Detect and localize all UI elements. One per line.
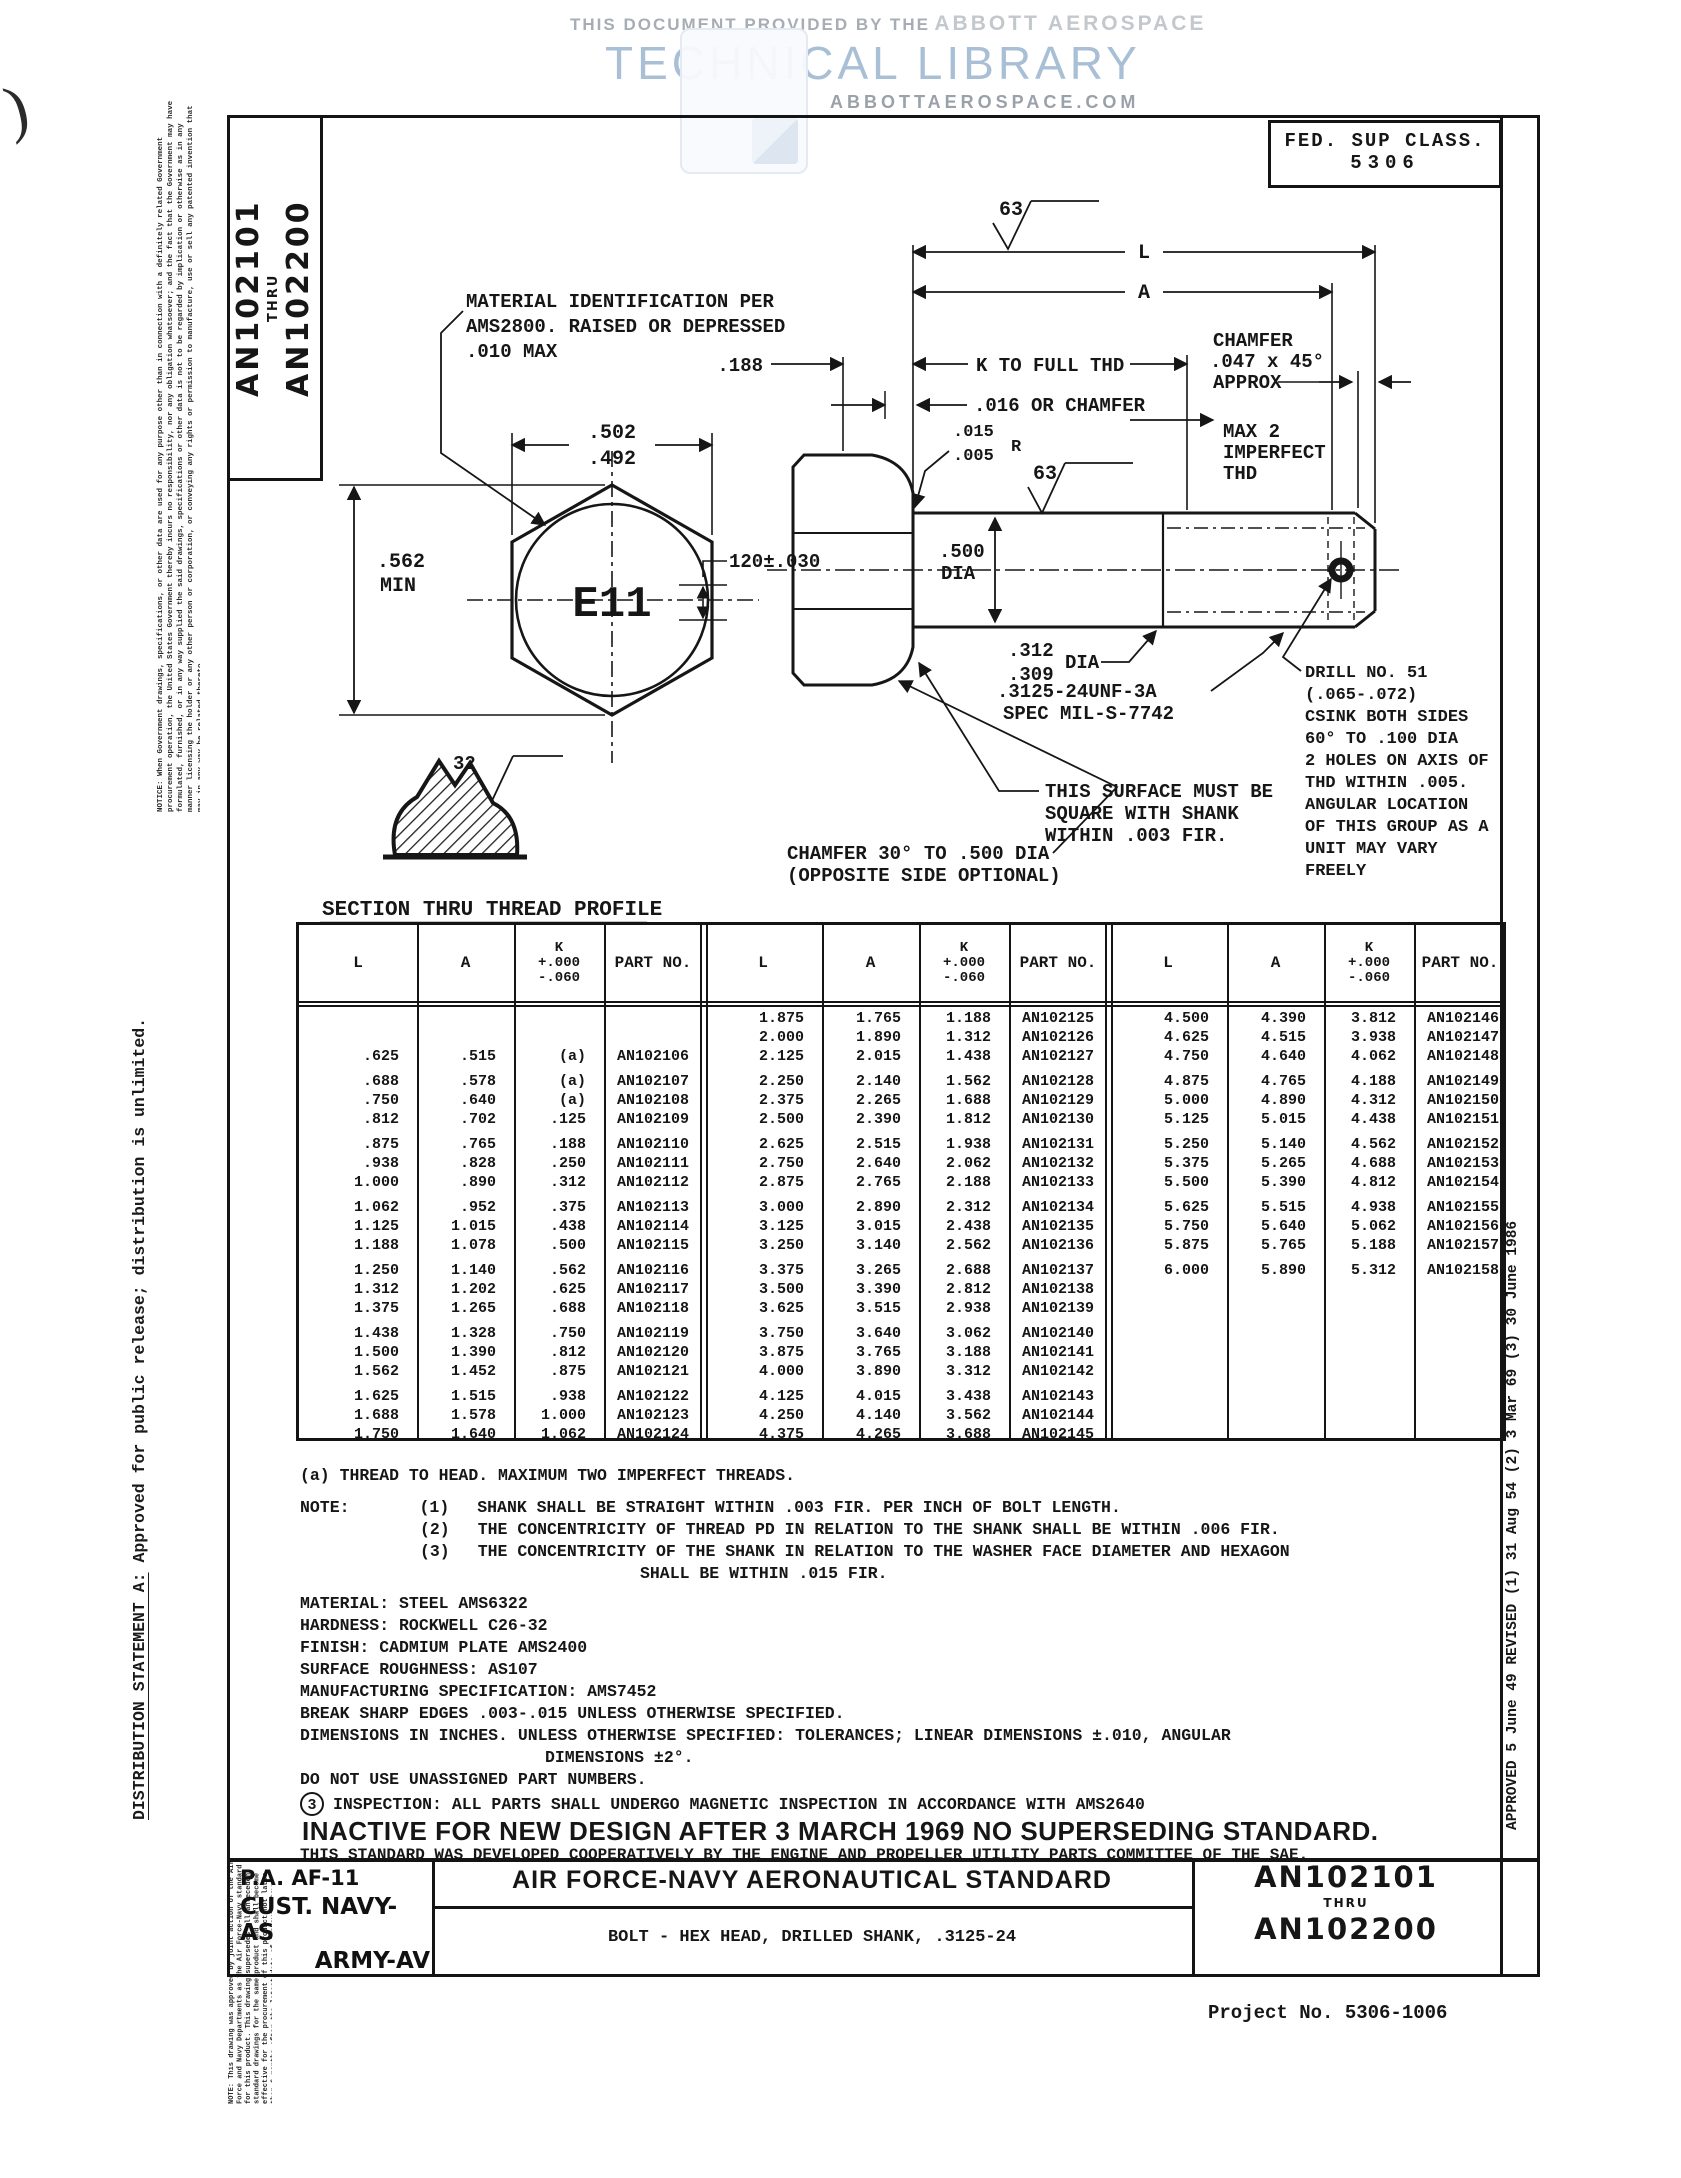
table-cell: 4.140 xyxy=(822,1406,919,1425)
table-cell: 2.640 xyxy=(822,1154,919,1173)
table-cell: 6.000 xyxy=(1109,1261,1227,1280)
table-cell: 2.265 xyxy=(822,1091,919,1110)
table-cell: 1.265 xyxy=(417,1299,514,1318)
table-cell: 4.062 xyxy=(1324,1047,1414,1066)
thread-spec-2: SPEC MIL-S-7742 xyxy=(1003,703,1174,725)
table-cell: AN102136 xyxy=(1009,1236,1107,1255)
table-row: 1.1881.078.500AN102115 xyxy=(299,1236,702,1255)
table-cell: 4.625 xyxy=(1109,1028,1227,1047)
table-cell: AN102113 xyxy=(604,1198,702,1217)
table-header: L A K +.000 -.060 PART NO. xyxy=(704,925,1107,1001)
table-cell: .688 xyxy=(299,1072,417,1091)
square-note-3: WITHIN .003 FIR. xyxy=(1045,825,1227,847)
table-cell: 5.188 xyxy=(1324,1236,1414,1255)
table-cell: AN102112 xyxy=(604,1173,702,1192)
table-cell: 5.375 xyxy=(1109,1154,1227,1173)
table-cell: 3.000 xyxy=(704,1198,822,1217)
table-cell: 4.375 xyxy=(704,1425,822,1444)
table-cell: 5.875 xyxy=(1109,1236,1227,1255)
table-cell: 1.500 xyxy=(299,1343,417,1362)
inspection-note: 3INSPECTION: ALL PARTS SHALL UNDERGO MAG… xyxy=(300,1792,1145,1816)
col-header-a: A xyxy=(1227,954,1324,972)
table-cell: 5.140 xyxy=(1227,1135,1324,1154)
table-cell: AN102149 xyxy=(1414,1072,1506,1091)
table-cell: 2.438 xyxy=(919,1217,1009,1236)
table-cell xyxy=(604,1028,702,1047)
table-cell: 1.312 xyxy=(299,1280,417,1299)
note-row-1: NOTE:(1)SHANK SHALL BE STRAIGHT WITHIN .… xyxy=(300,1498,1121,1517)
table-rule xyxy=(1324,925,1326,1438)
table-cell: 4.265 xyxy=(822,1425,919,1444)
table-row: 5.2505.1404.562AN102152 xyxy=(1109,1135,1506,1154)
table-cell: 1.688 xyxy=(299,1406,417,1425)
spec-break-edges: BREAK SHARP EDGES .003-.015 UNLESS OTHER… xyxy=(300,1704,845,1723)
table-row: 3.5003.3902.812AN102138 xyxy=(704,1280,1107,1299)
table-row-group: 5.6255.5154.938AN1021555.7505.6405.062AN… xyxy=(1109,1198,1506,1255)
table-row: .875.765.188AN102110 xyxy=(299,1135,702,1154)
table-row: 5.6255.5154.938AN102155 xyxy=(1109,1198,1506,1217)
table-cell: 3.312 xyxy=(919,1362,1009,1381)
table-cell: 2.875 xyxy=(704,1173,822,1192)
table-cell: .578 xyxy=(417,1072,514,1091)
table-cell: 3.062 xyxy=(919,1324,1009,1343)
table-row: 1.4381.328.750AN102119 xyxy=(299,1324,702,1343)
table-row-group: 4.1254.0153.438AN1021434.2504.1403.562AN… xyxy=(704,1387,1107,1444)
table-cell: .702 xyxy=(417,1110,514,1129)
callout-material-id-1: MATERIAL IDENTIFICATION PER xyxy=(466,291,774,313)
table-cell: AN102137 xyxy=(1009,1261,1107,1280)
table-rule xyxy=(700,925,702,1438)
table-cell: 2.312 xyxy=(919,1198,1009,1217)
table-cell: (a) xyxy=(514,1047,604,1066)
table-cell: AN102117 xyxy=(604,1280,702,1299)
table-row: 3.8753.7653.188AN102141 xyxy=(704,1343,1107,1362)
table-cell: AN102133 xyxy=(1009,1173,1107,1192)
parts-table: L A K +.000 -.060 PART NO. .625.515(a)AN… xyxy=(296,922,1506,1441)
table-cell: .312 xyxy=(514,1173,604,1192)
table-cell: AN102155 xyxy=(1414,1198,1506,1217)
inactive-statement: INACTIVE FOR NEW DESIGN AFTER 3 MARCH 19… xyxy=(302,1816,1379,1847)
table-cell: .500 xyxy=(514,1236,604,1255)
table-cell: 5.062 xyxy=(1324,1217,1414,1236)
table-cell: 1.875 xyxy=(704,1009,822,1028)
table-cell: 3.250 xyxy=(704,1236,822,1255)
col-header-a: A xyxy=(822,954,919,972)
table-rule xyxy=(919,925,921,1438)
table-row: 1.5001.390.812AN102120 xyxy=(299,1343,702,1362)
watermark-abbott: ABBOTT AEROSPACE xyxy=(934,12,1206,35)
spec-unassigned: DO NOT USE UNASSIGNED PART NUMBERS. xyxy=(300,1770,647,1789)
pen-mark: ) xyxy=(0,71,36,148)
table-cell: 4.640 xyxy=(1227,1047,1324,1066)
distribution-statement-text: Approved for public release; distributio… xyxy=(130,1018,149,1573)
shank-dia-label: DIA xyxy=(941,563,976,585)
table-header: L A K +.000 -.060 PART NO. xyxy=(299,925,702,1001)
table-cell: 4.875 xyxy=(1109,1072,1227,1091)
table-cell: 4.438 xyxy=(1324,1110,1414,1129)
table-row: 3.6253.5152.938AN102139 xyxy=(704,1299,1107,1318)
table-row: 2.2502.1401.562AN102128 xyxy=(704,1072,1107,1091)
table-cell: 3.688 xyxy=(919,1425,1009,1444)
table-cell: 2.140 xyxy=(822,1072,919,1091)
table-cell: AN102126 xyxy=(1009,1028,1107,1047)
table-row: 2.8752.7652.188AN102133 xyxy=(704,1173,1107,1192)
col-header-l: L xyxy=(704,954,822,972)
table-cell: .938 xyxy=(299,1154,417,1173)
table-cell: .515 xyxy=(417,1047,514,1066)
table-cell: 2.625 xyxy=(704,1135,822,1154)
table-row: 1.000.890.312AN102112 xyxy=(299,1173,702,1192)
table-row-group: 1.6251.515.938AN1021221.6881.5781.000AN1… xyxy=(299,1387,702,1444)
table-cell: 4.125 xyxy=(704,1387,822,1406)
table-cell: AN102140 xyxy=(1009,1324,1107,1343)
table-cell: 1.015 xyxy=(417,1217,514,1236)
table-cell: AN102135 xyxy=(1009,1217,1107,1236)
table-cell: AN102116 xyxy=(604,1261,702,1280)
col-header-k: K +.000 -.060 xyxy=(919,941,1009,986)
table-cell: 1.188 xyxy=(919,1009,1009,1028)
table-row: 1.3751.265.688AN102118 xyxy=(299,1299,702,1318)
table-cell: 5.515 xyxy=(1227,1198,1324,1217)
table-row-group: 2.2502.1401.562AN1021282.3752.2651.688AN… xyxy=(704,1072,1107,1129)
table-rule xyxy=(1414,925,1416,1438)
table-header-rule xyxy=(299,1001,1503,1007)
table-cell: .375 xyxy=(514,1198,604,1217)
col-header-l: L xyxy=(1109,954,1227,972)
col-header-part: PART NO. xyxy=(1009,954,1107,972)
table-row: 1.062.952.375AN102113 xyxy=(299,1198,702,1217)
table-cell: 4.515 xyxy=(1227,1028,1324,1047)
table-cell: 2.515 xyxy=(822,1135,919,1154)
hole-dia-label: DIA xyxy=(1065,652,1100,674)
callout-imperfect-3: THD xyxy=(1223,463,1257,485)
square-note-1: THIS SURFACE MUST BE xyxy=(1045,781,1273,803)
table-cell: 1.000 xyxy=(299,1173,417,1192)
table-row-group: 4.5004.3903.812AN1021464.6254.5153.938AN… xyxy=(1109,1009,1506,1066)
table-cell: 1.062 xyxy=(514,1425,604,1444)
table-cell: 3.188 xyxy=(919,1343,1009,1362)
table-cell: AN102157 xyxy=(1414,1236,1506,1255)
table-cell: 1.390 xyxy=(417,1343,514,1362)
scanned-standard-page: THIS DOCUMENT PROVIDED BY THE ABBOTT AER… xyxy=(0,0,1681,2178)
dim-marking-size: 120±.030 xyxy=(729,551,820,573)
title-block-agency: P.A. AF-11 CUST. NAVY-AS ARMY-AV xyxy=(240,1866,430,1974)
table-cell: AN102138 xyxy=(1009,1280,1107,1299)
table-cell: AN102130 xyxy=(1009,1110,1107,1129)
shank-dia-value: .500 xyxy=(939,541,985,563)
table-row: 3.7503.6403.062AN102140 xyxy=(704,1324,1107,1343)
table-row: 4.2504.1403.562AN102144 xyxy=(704,1406,1107,1425)
table-cell: 1.438 xyxy=(299,1324,417,1343)
table-cell: 3.562 xyxy=(919,1406,1009,1425)
table-cell: 1.452 xyxy=(417,1362,514,1381)
table-cell: 3.515 xyxy=(822,1299,919,1318)
finish-63-top: 63 xyxy=(999,199,1023,222)
table-row-group: 3.7503.6403.062AN1021403.8753.7653.188AN… xyxy=(704,1324,1107,1381)
table-cell: .250 xyxy=(514,1154,604,1173)
table-row: 1.8751.7651.188AN102125 xyxy=(704,1009,1107,1028)
table-row: 4.5004.3903.812AN102146 xyxy=(1109,1009,1506,1028)
table-cell: 4.250 xyxy=(704,1406,822,1425)
table-cell: 5.312 xyxy=(1324,1261,1414,1280)
table-cell xyxy=(514,1028,604,1047)
table-cell: 4.938 xyxy=(1324,1198,1414,1217)
table-cell: 2.500 xyxy=(704,1110,822,1129)
table-cell: AN102146 xyxy=(1414,1009,1506,1028)
table-rule xyxy=(417,925,419,1438)
table-row: 1.5621.452.875AN102121 xyxy=(299,1362,702,1381)
table-cell: 2.938 xyxy=(919,1299,1009,1318)
table-row: 1.1251.015.438AN102114 xyxy=(299,1217,702,1236)
table-row-group: .875.765.188AN102110.938.828.250AN102111… xyxy=(299,1135,702,1192)
title-block-an-range: AN102101 THRU AN102200 xyxy=(1192,1860,1500,1946)
table-row: 4.8754.7654.188AN102149 xyxy=(1109,1072,1506,1091)
table-row-group: 4.8754.7654.188AN1021495.0004.8904.312AN… xyxy=(1109,1072,1506,1129)
table-cell: AN102150 xyxy=(1414,1091,1506,1110)
table-row: 5.5005.3904.812AN102154 xyxy=(1109,1173,1506,1192)
table-cell: AN102131 xyxy=(1009,1135,1107,1154)
table-rule xyxy=(1009,925,1011,1438)
table-cell: 1.188 xyxy=(299,1236,417,1255)
table-rule xyxy=(1105,925,1107,1438)
table-cell xyxy=(299,1009,417,1028)
title-block-mid-rule xyxy=(432,1906,1195,1909)
table-cell: AN102124 xyxy=(604,1425,702,1444)
table-cell: .688 xyxy=(514,1299,604,1318)
table-cell: .812 xyxy=(514,1343,604,1362)
table-cell: 2.015 xyxy=(822,1047,919,1066)
table-row: 5.0004.8904.312AN102150 xyxy=(1109,1091,1506,1110)
table-cell: AN102134 xyxy=(1009,1198,1107,1217)
drill-note-1: DRILL NO. 51 xyxy=(1305,664,1427,683)
table-cell: 2.250 xyxy=(704,1072,822,1091)
table-cell: AN102156 xyxy=(1414,1217,1506,1236)
table-cell: 3.125 xyxy=(704,1217,822,1236)
table-cell: (a) xyxy=(514,1091,604,1110)
table-cell: .952 xyxy=(417,1198,514,1217)
thread-to-head-note: (a) THREAD TO HEAD. MAXIMUM TWO IMPERFEC… xyxy=(300,1466,795,1485)
an-thru: THRU xyxy=(1192,1896,1500,1910)
fillet-radius-min: .005 xyxy=(953,447,994,466)
callout-imperfect-2: IMPERFECT xyxy=(1223,442,1326,464)
table-cell: .750 xyxy=(299,1091,417,1110)
table-row: 5.1255.0154.438AN102151 xyxy=(1109,1110,1506,1129)
table-header: L A K +.000 -.060 PART NO. xyxy=(1109,925,1506,1001)
table-cell: .875 xyxy=(299,1135,417,1154)
bolt-drawing: MATERIAL IDENTIFICATION PER AMS2800. RAI… xyxy=(227,115,1502,925)
dim-head-height: .562 xyxy=(377,551,425,574)
table-cell: 3.140 xyxy=(822,1236,919,1255)
drill-note-7: ANGULAR LOCATION xyxy=(1305,796,1468,815)
table-cell: AN102118 xyxy=(604,1299,702,1318)
table-row-group: 1.2501.140.562AN1021161.3121.202.625AN10… xyxy=(299,1261,702,1318)
custodian-army: ARMY-AV xyxy=(240,1948,430,1974)
table-rule xyxy=(706,925,708,1438)
table-cell: 1.812 xyxy=(919,1110,1009,1129)
procuring-activity: P.A. AF-11 xyxy=(240,1866,430,1890)
spec-dimensions-2: DIMENSIONS ±2°. xyxy=(545,1748,694,1767)
spec-surface-roughness: SURFACE ROUGHNESS: AS107 xyxy=(300,1660,538,1679)
table-cell: 1.140 xyxy=(417,1261,514,1280)
table-cell: .828 xyxy=(417,1154,514,1173)
table-cell: 3.390 xyxy=(822,1280,919,1299)
callout-material-id-2: AMS2800. RAISED OR DEPRESSED xyxy=(466,316,785,338)
table-cell: .125 xyxy=(514,1110,604,1129)
table-cell: 4.562 xyxy=(1324,1135,1414,1154)
table-cell: AN102153 xyxy=(1414,1154,1506,1173)
table-cell: AN102141 xyxy=(1009,1343,1107,1362)
drill-note-3: CSINK BOTH SIDES xyxy=(1305,708,1468,727)
table-row: 4.1254.0153.438AN102143 xyxy=(704,1387,1107,1406)
table-row: 4.0003.8903.312AN102142 xyxy=(704,1362,1107,1381)
table-row: 5.8755.7655.188AN102157 xyxy=(1109,1236,1506,1255)
table-cell: .640 xyxy=(417,1091,514,1110)
col-header-l: L xyxy=(299,954,417,972)
watermark-provider-line: THIS DOCUMENT PROVIDED BY THE ABBOTT AER… xyxy=(570,12,1206,36)
table-cell: 1.438 xyxy=(919,1047,1009,1066)
square-note-2: SQUARE WITH SHANK xyxy=(1045,803,1239,825)
distribution-statement: DISTRIBUTION STATEMENT A: Approved for p… xyxy=(130,990,168,1820)
table-cell: (a) xyxy=(514,1072,604,1091)
table-row: 2.7502.6402.062AN102132 xyxy=(704,1154,1107,1173)
table-cell: 3.015 xyxy=(822,1217,919,1236)
circled-3-icon: 3 xyxy=(300,1792,324,1816)
drill-note-4: 60° TO .100 DIA xyxy=(1305,730,1459,749)
table-cell: 1.578 xyxy=(417,1406,514,1425)
table-row: 1.2501.140.562AN102116 xyxy=(299,1261,702,1280)
drill-note-6: THD WITHIN .005. xyxy=(1305,774,1468,793)
table-row: 3.1253.0152.438AN102135 xyxy=(704,1217,1107,1236)
table-block-body-2: 1.8751.7651.188AN1021252.0001.8901.312AN… xyxy=(704,1009,1107,1450)
table-cell: AN102125 xyxy=(1009,1009,1107,1028)
table-cell: 4.188 xyxy=(1324,1072,1414,1091)
section-label: SECTION THRU THREAD PROFILE xyxy=(322,899,662,922)
table-row: .938.828.250AN102111 xyxy=(299,1154,702,1173)
table-cell: 5.500 xyxy=(1109,1173,1227,1192)
col-header-a: A xyxy=(417,954,514,972)
thread-spec-1: .3125-24UNF-3A xyxy=(997,681,1157,703)
table-cell: 2.688 xyxy=(919,1261,1009,1280)
note-row-3: (3)THE CONCENTRICITY OF THE SHANK IN REL… xyxy=(420,1542,1290,1561)
table-rule xyxy=(1111,925,1113,1438)
table-cell: AN102115 xyxy=(604,1236,702,1255)
table-cell: AN102158 xyxy=(1414,1261,1506,1280)
table-cell: AN102132 xyxy=(1009,1154,1107,1173)
note-row-2: (2)THE CONCENTRICITY OF THREAD PD IN REL… xyxy=(420,1520,1280,1539)
table-cell: AN102109 xyxy=(604,1110,702,1129)
spec-finish: FINISH: CADMIUM PLATE AMS2400 xyxy=(300,1638,587,1657)
watermark-url: ABBOTTAEROSPACE.COM xyxy=(830,92,1139,113)
finish-63-thread: 63 xyxy=(1033,463,1057,486)
table-cell: 2.890 xyxy=(822,1198,919,1217)
dim-across-flats-min: .492 xyxy=(588,448,636,471)
part-title: BOLT - HEX HEAD, DRILLED SHANK, .3125-24 xyxy=(432,1928,1192,1947)
drill-note-10: FREELY xyxy=(1305,862,1367,881)
table-cell: 2.390 xyxy=(822,1110,919,1129)
table-row: .688.578(a)AN102107 xyxy=(299,1072,702,1091)
table-cell: 3.765 xyxy=(822,1343,919,1362)
table-cell: 4.812 xyxy=(1324,1173,1414,1192)
table-cell: 2.375 xyxy=(704,1091,822,1110)
table-row: 2.0001.8901.312AN102126 xyxy=(704,1028,1107,1047)
drill-note-5: 2 HOLES ON AXIS OF xyxy=(1305,752,1489,771)
table-cell: AN102128 xyxy=(1009,1072,1107,1091)
spec-dimensions-1: DIMENSIONS IN INCHES. UNLESS OTHERWISE S… xyxy=(300,1726,1231,1745)
table-cell: 3.640 xyxy=(822,1324,919,1343)
table-cell: 4.890 xyxy=(1227,1091,1324,1110)
table-cell: 3.750 xyxy=(704,1324,822,1343)
table-cell: .438 xyxy=(514,1217,604,1236)
table-cell: AN102122 xyxy=(604,1387,702,1406)
table-cell: 4.750 xyxy=(1109,1047,1227,1066)
table-cell: .562 xyxy=(514,1261,604,1280)
table-rule xyxy=(1227,925,1229,1438)
table-cell: 1.202 xyxy=(417,1280,514,1299)
spec-manufacturing: MANUFACTURING SPECIFICATION: AMS7452 xyxy=(300,1682,656,1701)
table-block-body-1: .625.515(a)AN102106.688.578(a)AN102107.7… xyxy=(299,1009,702,1450)
table-cell: 1.312 xyxy=(919,1028,1009,1047)
table-rule xyxy=(822,925,824,1438)
table-cell: AN102143 xyxy=(1009,1387,1107,1406)
finish-32: 32 xyxy=(453,753,476,775)
note-row-3-cont: SHALL BE WITHIN .015 FIR. xyxy=(640,1564,888,1583)
table-row: 2.3752.2651.688AN102129 xyxy=(704,1091,1107,1110)
table-cell: AN102139 xyxy=(1009,1299,1107,1318)
table-cell: .812 xyxy=(299,1110,417,1129)
table-cell: 1.750 xyxy=(299,1425,417,1444)
table-cell: 1.938 xyxy=(919,1135,1009,1154)
table-cell: .750 xyxy=(514,1324,604,1343)
table-row: 1.6251.515.938AN102122 xyxy=(299,1387,702,1406)
chamfer30-note-2: (OPPOSITE SIDE OPTIONAL) xyxy=(787,865,1061,887)
table-cell: 5.750 xyxy=(1109,1217,1227,1236)
table-row: 5.7505.6405.062AN102156 xyxy=(1109,1217,1506,1236)
dim-across-flats-max: .502 xyxy=(588,422,636,445)
table-cell: AN102144 xyxy=(1009,1406,1107,1425)
table-cell: 4.015 xyxy=(822,1387,919,1406)
table-cell xyxy=(299,1028,417,1047)
table-cell: 1.890 xyxy=(822,1028,919,1047)
table-cell: AN102121 xyxy=(604,1362,702,1381)
table-row: .625.515(a)AN102106 xyxy=(299,1047,702,1066)
table-cell: .188 xyxy=(514,1135,604,1154)
table-row: 2.1252.0151.438AN102127 xyxy=(704,1047,1107,1066)
table-cell: AN102127 xyxy=(1009,1047,1107,1066)
col-header-k: K +.000 -.060 xyxy=(1324,941,1414,986)
table-row: .812.702.125AN102109 xyxy=(299,1110,702,1129)
table-cell: 3.438 xyxy=(919,1387,1009,1406)
table-cell: 5.890 xyxy=(1227,1261,1324,1280)
table-cell: AN102107 xyxy=(604,1072,702,1091)
table-row: 5.3755.2654.688AN102153 xyxy=(1109,1154,1506,1173)
table-cell: AN102110 xyxy=(604,1135,702,1154)
table-rule xyxy=(604,925,606,1438)
project-number: Project No. 5306-1006 xyxy=(1208,2002,1447,2024)
fillet-radius-r: R xyxy=(1011,438,1022,457)
table-row: 1.3121.202.625AN102117 xyxy=(299,1280,702,1299)
custodian-navy: CUST. NAVY-AS xyxy=(240,1894,430,1946)
table-cell: 3.375 xyxy=(704,1261,822,1280)
table-cell: 5.625 xyxy=(1109,1198,1227,1217)
table-cell: AN102111 xyxy=(604,1154,702,1173)
distribution-statement-label: DISTRIBUTION STATEMENT A: xyxy=(130,1572,149,1820)
head-marking: E11 xyxy=(572,580,651,630)
col-header-part: PART NO. xyxy=(1414,954,1506,972)
table-cell: AN102123 xyxy=(604,1406,702,1425)
table-cell: 1.062 xyxy=(299,1198,417,1217)
table-row: 4.3754.2653.688AN102145 xyxy=(704,1425,1107,1444)
table-row xyxy=(299,1028,702,1047)
